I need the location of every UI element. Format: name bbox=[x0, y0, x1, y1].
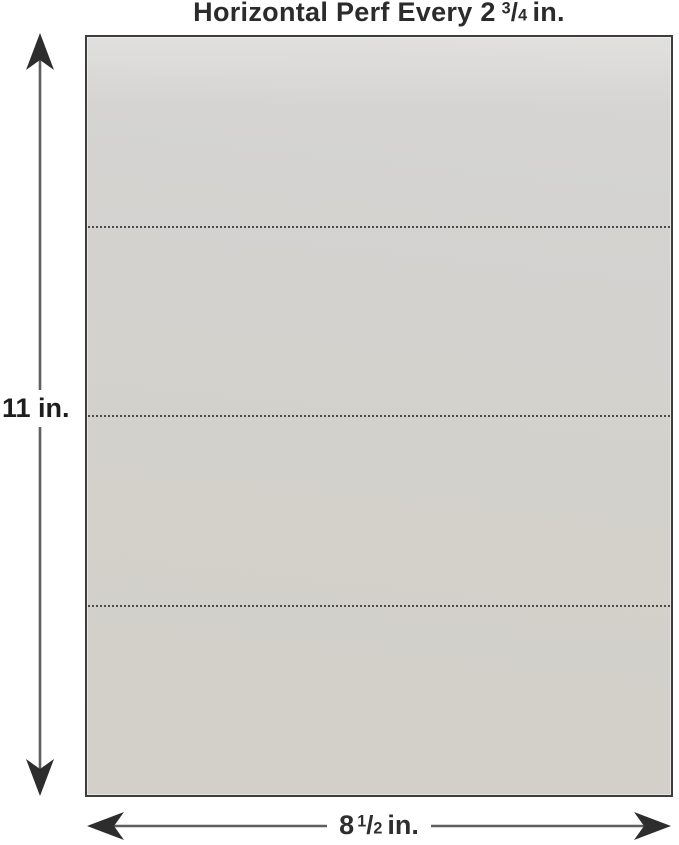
paper-sheen bbox=[87, 37, 671, 107]
perforation-line-1 bbox=[88, 226, 670, 228]
diagram-title: Horizontal Perf Every 23/4in. bbox=[85, 0, 673, 28]
perforation-line-2 bbox=[88, 415, 670, 417]
title-fraction-slash: / bbox=[511, 0, 518, 27]
perforation-line-3 bbox=[88, 605, 670, 607]
title-fraction-denominator: 4 bbox=[518, 7, 527, 25]
title-suffix: in. bbox=[532, 0, 564, 27]
paper-sheet bbox=[85, 35, 673, 797]
title-prefix: Horizontal Perf Every 2 bbox=[193, 0, 496, 27]
width-dimension-arrow bbox=[85, 809, 673, 843]
title-fraction-numerator: 3 bbox=[502, 0, 511, 18]
height-label: 11 in. bbox=[1, 390, 78, 427]
diagram-canvas: Horizontal Perf Every 23/4in. 11 in. 81/… bbox=[0, 0, 679, 845]
